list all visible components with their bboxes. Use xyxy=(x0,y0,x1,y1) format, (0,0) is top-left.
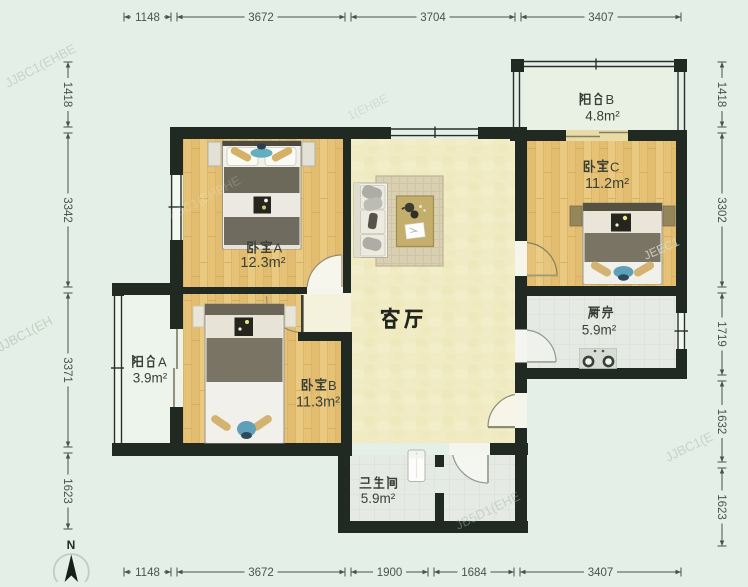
svg-text:B: B xyxy=(328,378,337,393)
svg-text:1148: 1148 xyxy=(135,567,160,579)
svg-text:3407: 3407 xyxy=(588,567,614,579)
svg-text:3371: 3371 xyxy=(61,357,73,383)
svg-text:1418: 1418 xyxy=(61,82,73,108)
svg-text:5.9m²: 5.9m² xyxy=(582,323,617,338)
svg-text:4.8m²: 4.8m² xyxy=(585,109,620,124)
svg-text:3704: 3704 xyxy=(420,12,446,24)
svg-text:A: A xyxy=(274,240,283,255)
svg-text:12.3m²: 12.3m² xyxy=(240,255,285,271)
svg-text:1719: 1719 xyxy=(715,321,727,347)
svg-text:3672: 3672 xyxy=(248,567,274,579)
svg-text:A: A xyxy=(158,354,167,369)
svg-text:1148: 1148 xyxy=(135,12,160,24)
svg-text:N: N xyxy=(67,538,76,552)
svg-text:3407: 3407 xyxy=(588,12,614,24)
svg-text:1684: 1684 xyxy=(461,567,487,579)
svg-text:B: B xyxy=(606,92,615,107)
svg-text:11.3m²: 11.3m² xyxy=(296,394,340,410)
svg-text:3672: 3672 xyxy=(248,12,274,24)
svg-text:1900: 1900 xyxy=(377,567,403,579)
svg-text:5.9m²: 5.9m² xyxy=(361,491,396,506)
svg-text:1623: 1623 xyxy=(715,494,727,520)
svg-text:1623: 1623 xyxy=(61,478,73,504)
svg-text:C: C xyxy=(610,159,619,174)
svg-text:1418: 1418 xyxy=(715,82,727,108)
svg-text:3342: 3342 xyxy=(61,197,73,223)
svg-text:3302: 3302 xyxy=(715,197,727,223)
svg-text:1632: 1632 xyxy=(715,409,727,435)
svg-text:11.2m²: 11.2m² xyxy=(585,176,629,192)
svg-text:3.9m²: 3.9m² xyxy=(133,371,168,386)
